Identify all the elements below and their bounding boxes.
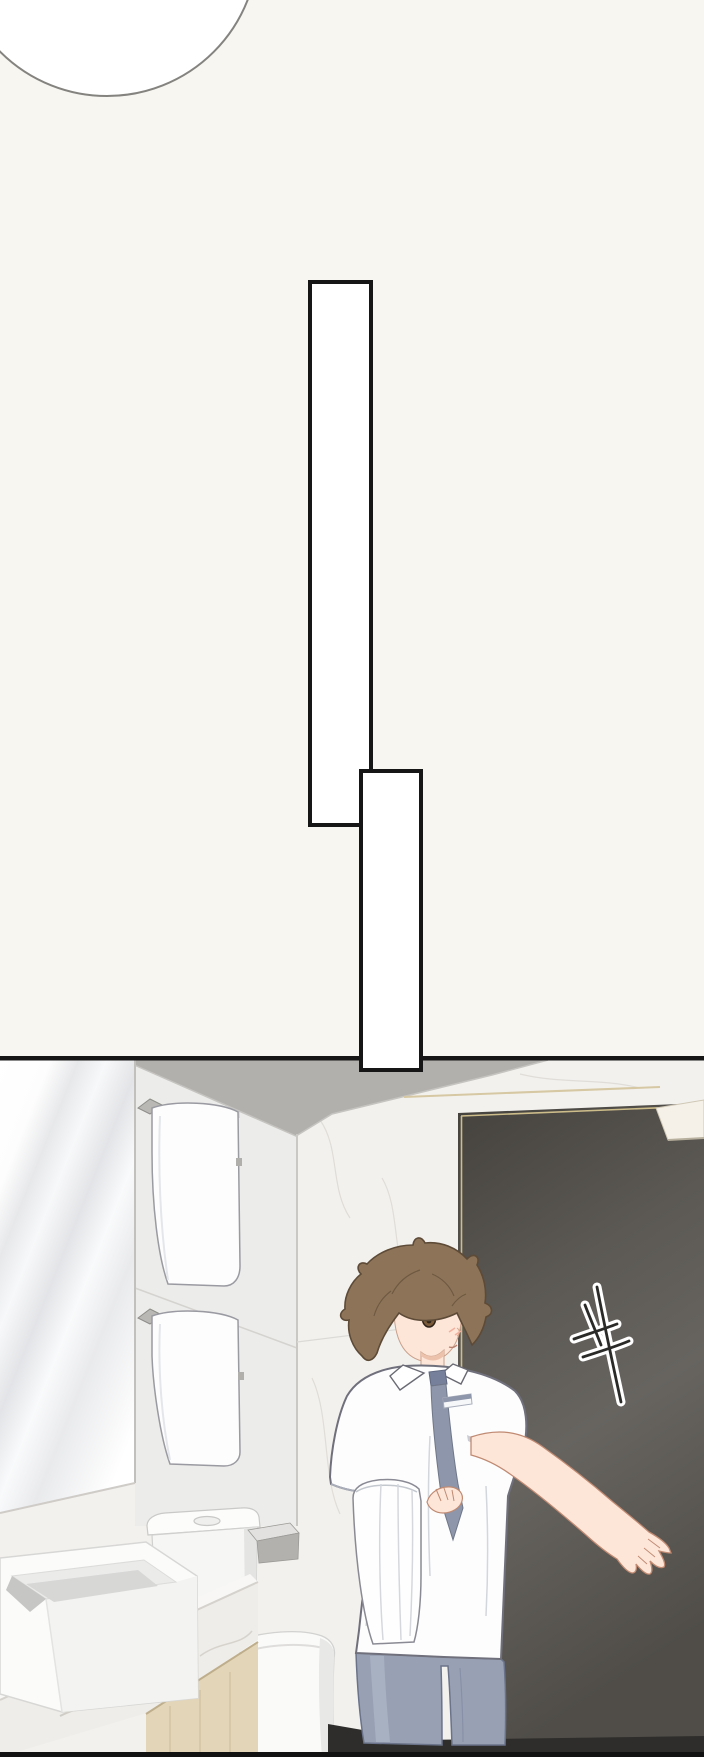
vessel-sink xyxy=(0,1542,198,1712)
comic-page xyxy=(0,0,704,1757)
bubble-arc-top-left xyxy=(0,0,259,97)
bathroom-panel xyxy=(0,1056,704,1757)
bathroom-scene xyxy=(0,1056,704,1757)
hanging-towel-bottom xyxy=(152,1311,240,1466)
speech-bubble-2 xyxy=(359,769,423,1072)
panel-bottom-border xyxy=(0,1752,704,1757)
towel-anchor-top xyxy=(236,1158,242,1166)
towel-anchor-bottom xyxy=(238,1372,244,1380)
speech-bubble-1 xyxy=(308,280,373,827)
hanging-towel-top xyxy=(152,1103,240,1286)
mirror xyxy=(0,1060,135,1513)
pants xyxy=(356,1653,506,1745)
flush-button xyxy=(194,1517,220,1526)
panel-top-border xyxy=(0,1056,704,1061)
